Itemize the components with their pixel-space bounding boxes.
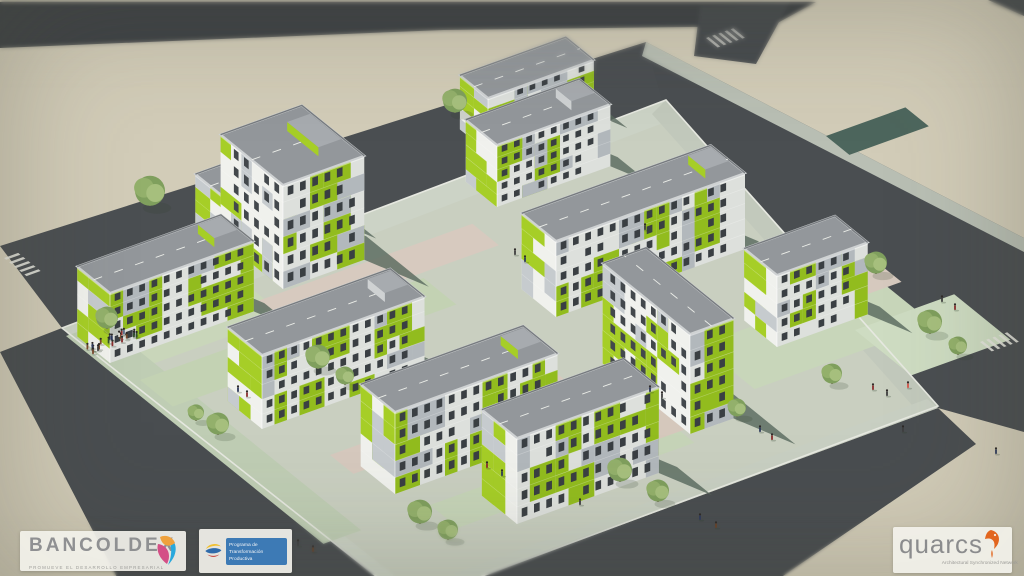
bancoldex-logo-card: BANCOLDEX PROMUEVE EL DESARROLLO EMPRESA… — [20, 531, 186, 571]
rendering-canvas — [0, 0, 1024, 576]
ptp-text-box: Programa de Transformación Productiva — [226, 538, 287, 565]
bancoldex-tagline: PROMUEVE EL DESARROLLO EMPRESARIAL — [29, 565, 164, 570]
ptp-line-1: Programa de — [229, 542, 263, 546]
quarcs-tagline: Architectural Synchronized Network — [942, 560, 1006, 565]
quarcs-bird-icon — [983, 529, 1003, 559]
facade-se — [690, 318, 733, 434]
quarcs-wordmark: quarcs — [899, 529, 983, 559]
ptp-swirl-icon — [204, 538, 223, 564]
ptp-line-3: Productiva — [229, 556, 263, 560]
bancoldex-flame-icon — [153, 535, 181, 567]
architectural-rendering: BANCOLDEX PROMUEVE EL DESARROLLO EMPRESA… — [0, 0, 1024, 576]
quarcs-logo-card: quarcs Architectural Synchronized Networ… — [893, 527, 1012, 573]
ptp-logo-card: Programa de Transformación Productiva — [199, 529, 292, 573]
ptp-line-2: Transformación — [229, 549, 263, 553]
